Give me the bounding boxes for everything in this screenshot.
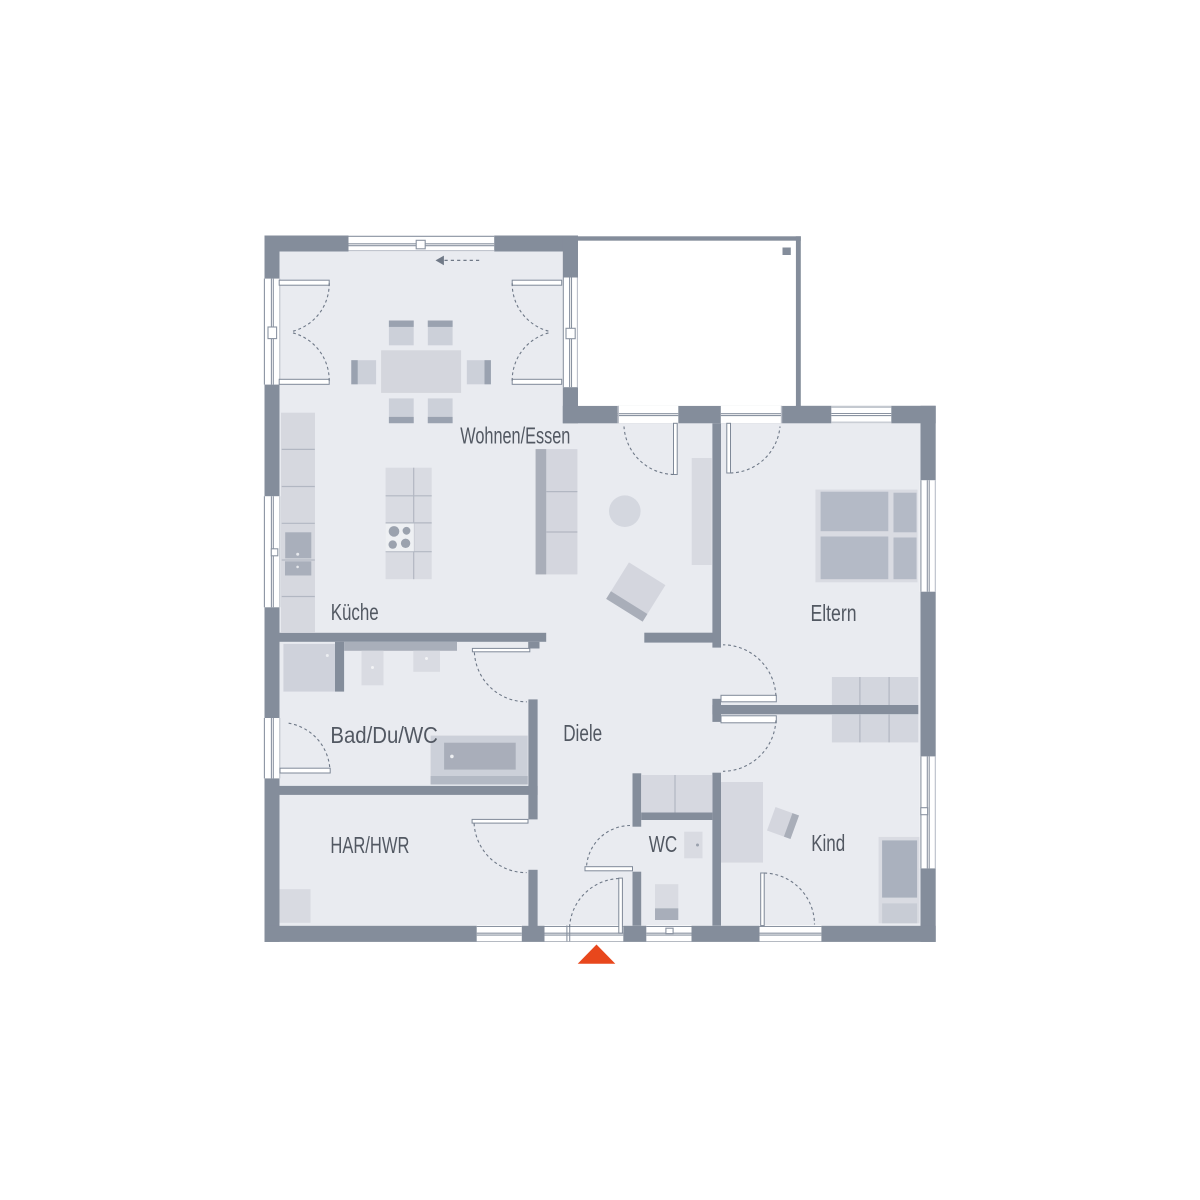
svg-text:Wohnen/Essen: Wohnen/Essen <box>460 423 570 449</box>
svg-text:Diele: Diele <box>563 720 602 746</box>
svg-text:Bad/Du/WC: Bad/Du/WC <box>330 722 438 748</box>
svg-text:Eltern: Eltern <box>811 600 857 626</box>
svg-text:Kind: Kind <box>811 830 845 856</box>
svg-text:Küche: Küche <box>331 599 379 625</box>
svg-text:HAR/HWR: HAR/HWR <box>330 832 409 858</box>
svg-text:WC: WC <box>649 831 678 857</box>
